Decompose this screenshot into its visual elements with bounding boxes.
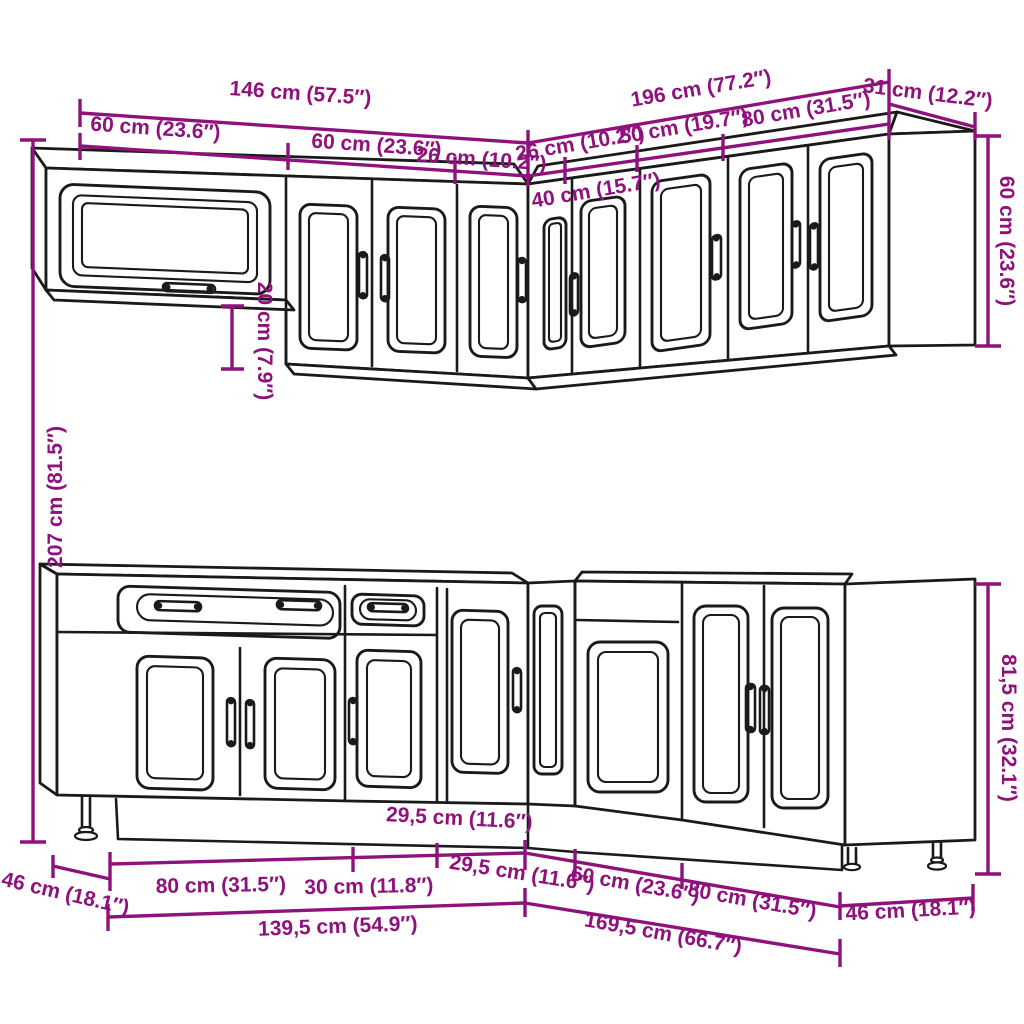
- dim-label-base-total-right: 169,5 cm (66.7″): [583, 908, 744, 958]
- dim-label-base-depth-right: 46 cm (18.1″): [845, 896, 976, 926]
- diagram-canvas: 146 cm (57.5″) 196 cm (77.2″) 31 cm (12.…: [0, 0, 1024, 1024]
- dim-label-top-total-left: 146 cm (57.5″): [229, 77, 372, 110]
- dim-label-top-depth-right: 31 cm (12.2″): [862, 74, 994, 113]
- dim-label-wall-height: 60 cm (23.6″): [995, 176, 1018, 306]
- kitchen-cabinet-dimension-diagram: 146 cm (57.5″) 196 cm (77.2″) 31 cm (12.…: [0, 0, 1024, 1024]
- cabinet-leg-front-left: [75, 797, 97, 840]
- dim-label-20-drop: 20 cm (7.9″): [253, 282, 276, 401]
- dim-label-base-80-right: 80 cm (31.5″): [686, 878, 818, 923]
- base-end-panel: [845, 579, 975, 845]
- dim-label-seg-glass: 60 cm (23.6″): [90, 112, 222, 144]
- dim-label-base-30: 30 cm (11.8″): [304, 874, 434, 899]
- dim-label-base-depth-left: 46 cm (18.1″): [0, 868, 132, 920]
- base-left-side-panel: [40, 564, 57, 795]
- cabinet-leg-end-front: [844, 848, 860, 870]
- dim-line-46-left: [53, 866, 110, 879]
- wall-right-end-panel: [889, 131, 975, 346]
- dim-label-total-height: 207 cm (81.5″): [44, 426, 67, 568]
- dim-line-20-drop: [221, 306, 244, 369]
- dim-label-base-total-left: 139,5 cm (54.9″): [258, 912, 418, 941]
- dim-label-base-height: 81,5 cm (32.1″): [997, 654, 1020, 802]
- cabinet-leg-end-back: [928, 843, 946, 870]
- dim-label-base-295-left: 29,5 cm (11.6″): [386, 803, 534, 834]
- dim-label-base-80-left: 80 cm (31.5″): [156, 873, 287, 898]
